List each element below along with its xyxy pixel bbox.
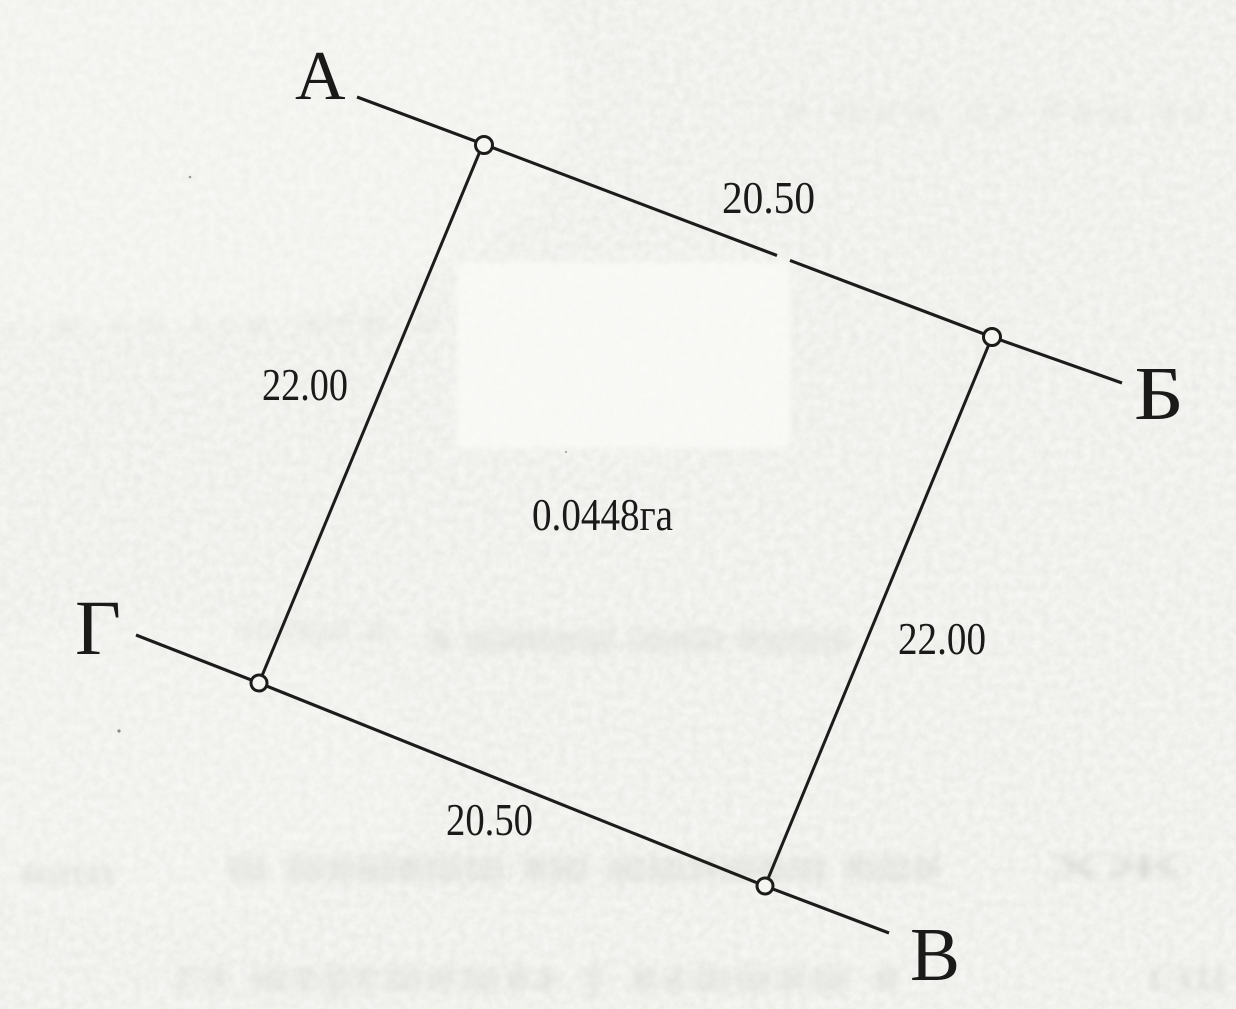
svg-text:Б: Б <box>1134 352 1184 436</box>
svg-text:шиш в: шиш в <box>240 607 390 649</box>
svg-text:А: А <box>295 38 346 115</box>
svg-text:0.0448га: 0.0448га <box>532 489 673 540</box>
svg-text:хж: хж <box>1048 836 1185 889</box>
svg-text:Г: Г <box>75 584 121 671</box>
svg-text:22.00: 22.00 <box>898 613 986 664</box>
svg-text:20.50: 20.50 <box>722 172 815 223</box>
svg-text:В: В <box>910 913 960 997</box>
svg-text:ш шишвшш вш шшишвш вши: ш шишвшш вш шшишвш вши <box>228 835 940 891</box>
svg-text:ш иш ваш шиш и: ш иш ваш шиш и <box>55 303 435 340</box>
svg-text:сш: сш <box>1148 948 1228 1001</box>
svg-text:ваш: ваш <box>20 848 115 893</box>
svg-text:гл шерешишва у вашшиш в: гл шерешишва у вашшиш в <box>178 948 898 1001</box>
svg-text:20.50: 20.50 <box>446 794 533 845</box>
svg-text:22.00: 22.00 <box>262 359 348 410</box>
svg-text:в шившш шиш вшша: в шившш шиш вшша <box>430 612 850 661</box>
